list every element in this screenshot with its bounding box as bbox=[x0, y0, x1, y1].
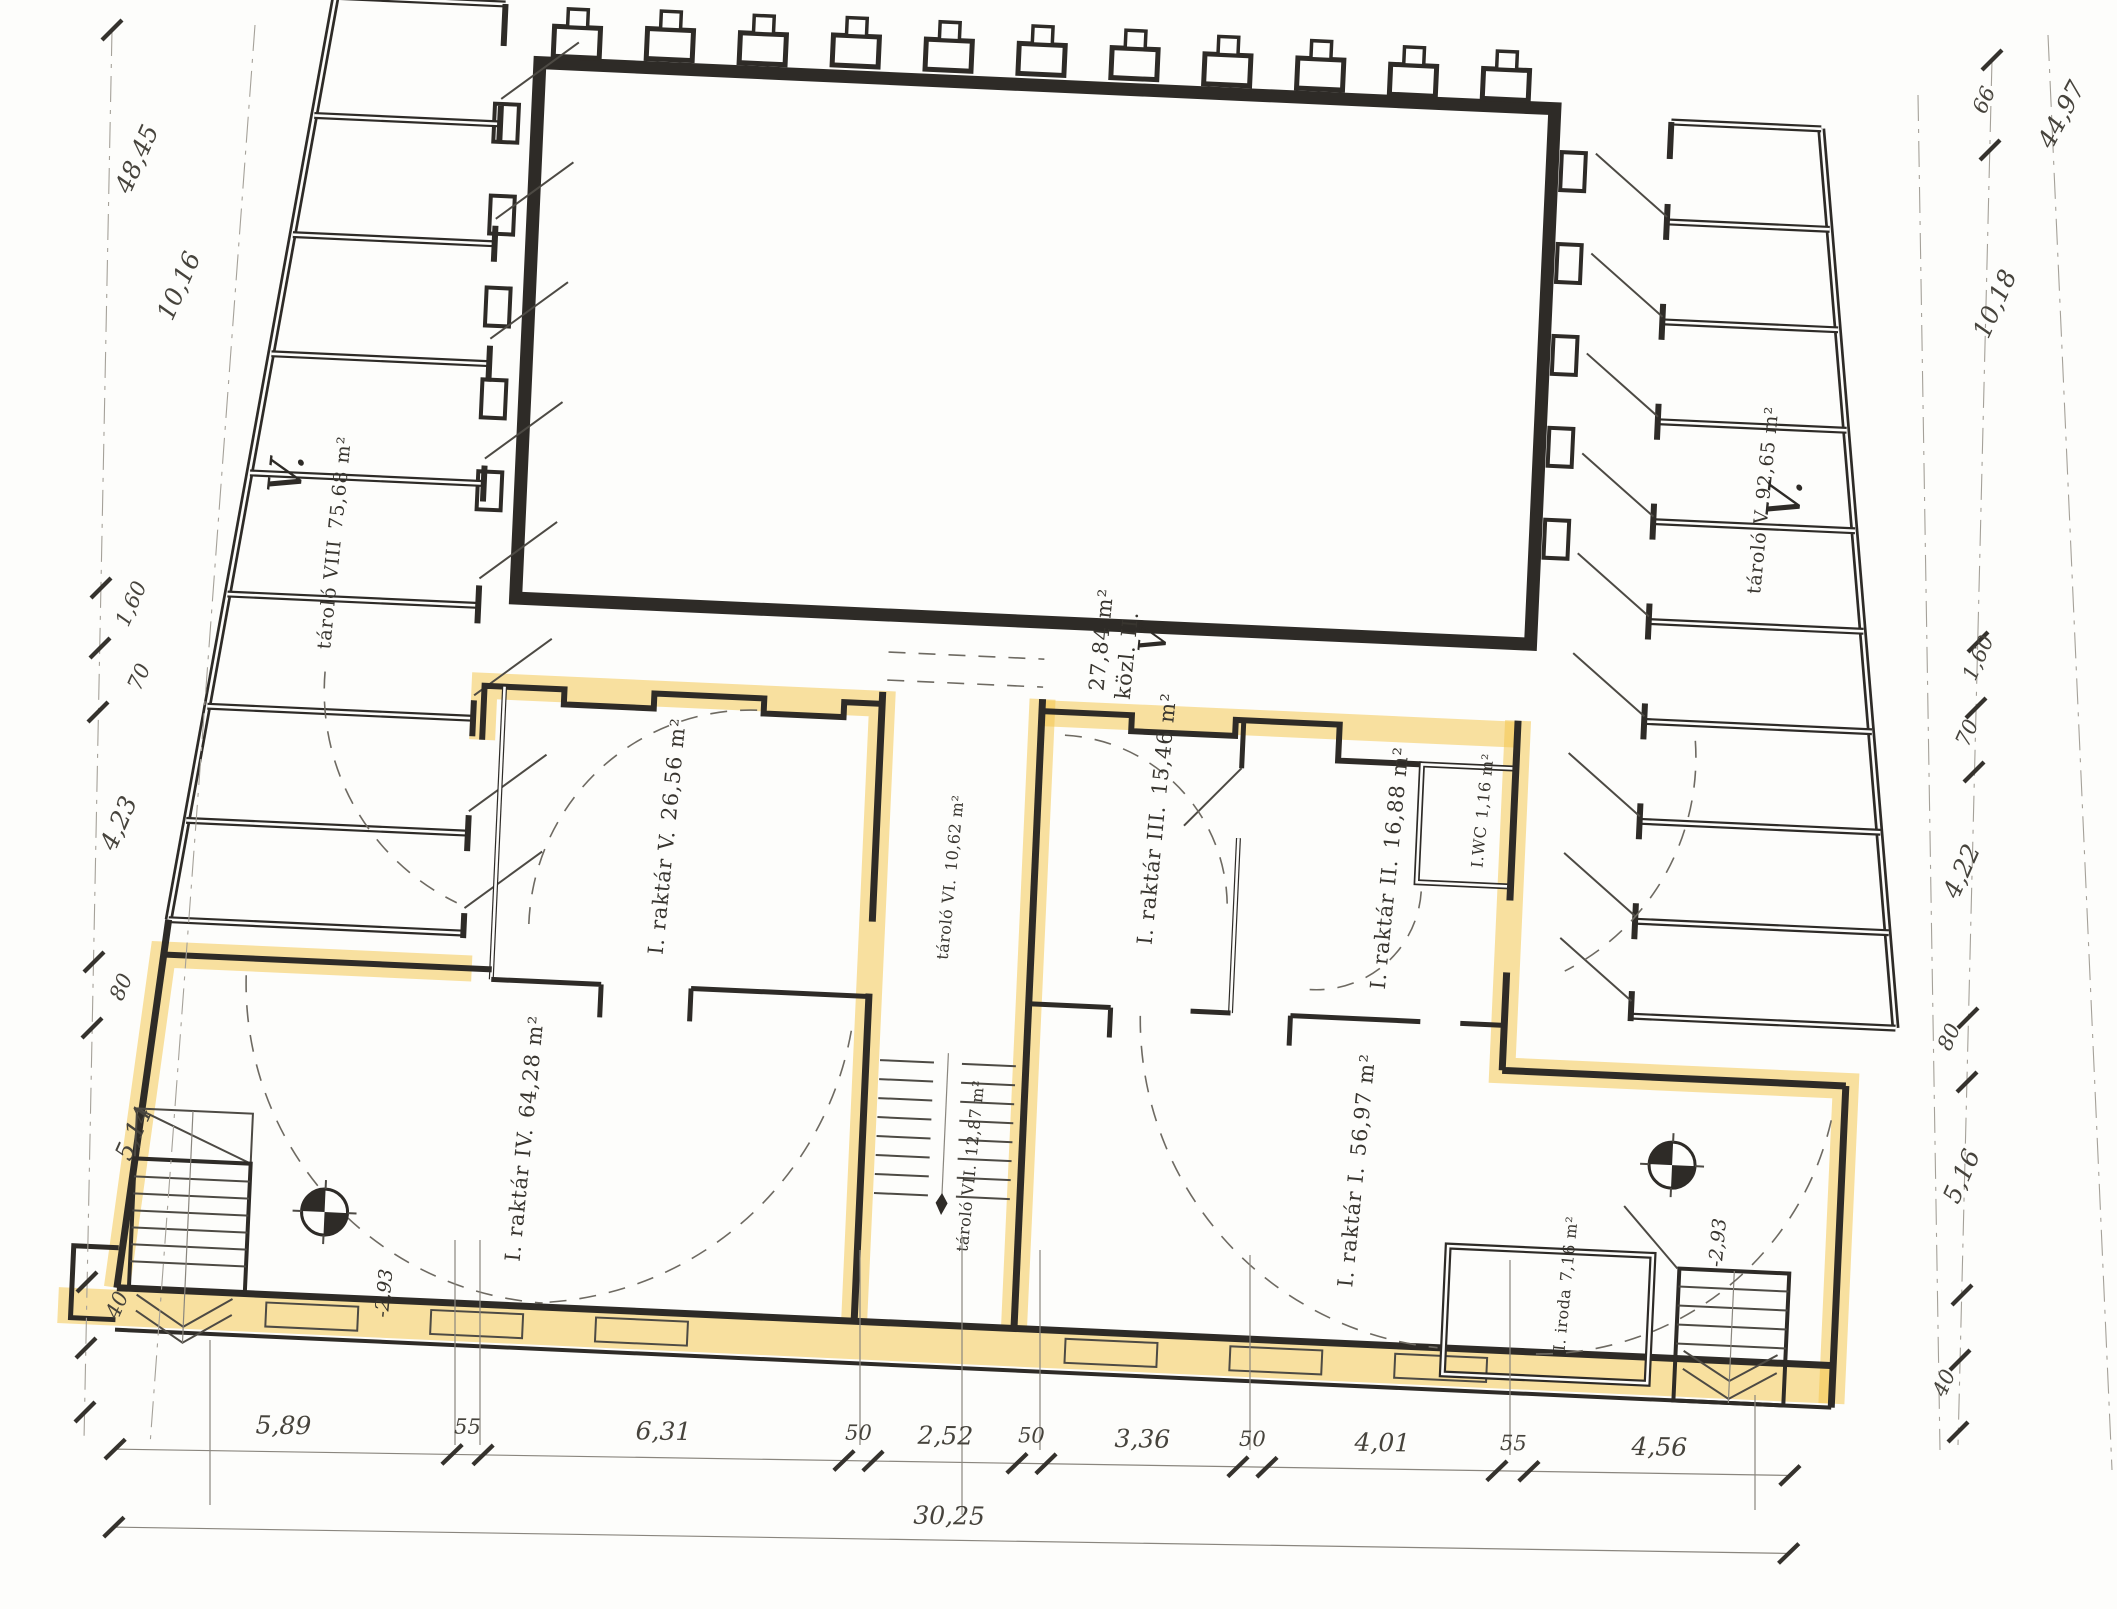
room-label-tarolo-viii: tároló VIII75,68 m² bbox=[313, 435, 356, 650]
room-area: 26,56 m² bbox=[657, 716, 691, 821]
room-name: tároló VII. bbox=[952, 1163, 979, 1252]
scanned-floor-plan-page: -2,93 -2,93 tároló VIII75,68 m² V. tárol… bbox=[0, 0, 2117, 1609]
dim-left-5: 80 bbox=[105, 970, 138, 1004]
dim-right-8: 40 bbox=[1927, 1366, 1960, 1401]
room-name: I. raktár II. bbox=[1366, 858, 1403, 991]
dim-bottom-9: 55 bbox=[1500, 1431, 1527, 1455]
dim-right-7: 5,16 bbox=[1937, 1145, 1986, 1208]
room-area: 56,97 m² bbox=[1346, 1052, 1380, 1157]
right-dimension-chain: 66 44,97 10,18 1,60 70 4,22 80 5,16 40 bbox=[1927, 50, 2091, 1442]
dim-right-2: 10,18 bbox=[1967, 265, 2023, 342]
dim-bottom-0: 5,89 bbox=[255, 1410, 311, 1440]
floor-plan-canvas: -2,93 -2,93 tároló VIII75,68 m² V. tárol… bbox=[0, 0, 2117, 1609]
dim-bottom-7: 50 bbox=[1239, 1427, 1266, 1451]
room-label-raktar-iv: I. raktár IV.64,28 m² bbox=[501, 1014, 549, 1262]
dim-right-3: 1,60 bbox=[1958, 632, 1999, 684]
dim-bottom-5: 50 bbox=[1018, 1423, 1045, 1447]
room-name: tároló VIII bbox=[313, 538, 346, 650]
dim-left-2: 1,60 bbox=[111, 578, 152, 630]
dim-bottom-2: 6,31 bbox=[635, 1416, 691, 1446]
floor-mark-corridor: V. bbox=[1130, 618, 1177, 655]
dim-left-1: 10,16 bbox=[151, 247, 207, 324]
highlight-layer bbox=[57, 656, 1861, 1404]
room-name: tároló V bbox=[1743, 509, 1773, 596]
dim-right-1: 44,97 bbox=[2031, 76, 2091, 154]
courtyard-side-pillars bbox=[477, 104, 1586, 559]
room-area: 1,16 m² bbox=[1472, 752, 1497, 819]
room-area: 7,16 m² bbox=[1556, 1215, 1581, 1282]
dim-left-0: 48,45 bbox=[109, 120, 165, 198]
level-marker-icon bbox=[1639, 1132, 1706, 1199]
room-label-raktar-v: I. raktár V.26,56 m² bbox=[644, 716, 691, 955]
floor-mark-left-wing: V. bbox=[257, 451, 315, 496]
room-label-iroda: I. iroda7,16 m² bbox=[1550, 1215, 1582, 1352]
room-label-raktar-ii: I. raktár II.16,88 m² bbox=[1366, 745, 1414, 990]
room-area: 75,68 m² bbox=[325, 435, 356, 531]
level-marker-icon bbox=[291, 1179, 358, 1246]
room-name: I. raktár V. bbox=[644, 829, 680, 956]
dim-bottom-8: 4,01 bbox=[1353, 1428, 1410, 1458]
floor-mark-right-wing: V. bbox=[1756, 476, 1814, 521]
room-label-raktar-i: I. raktár I.56,97 m² bbox=[1333, 1052, 1380, 1288]
dim-bottom-1: 55 bbox=[454, 1414, 481, 1438]
room-name: I. raktár IV. bbox=[501, 1127, 538, 1263]
dim-right-5: 4,22 bbox=[1937, 840, 1987, 904]
building-plan: -2,93 -2,93 tároló VIII75,68 m² V. tárol… bbox=[57, 0, 1940, 1420]
lower-block bbox=[70, 656, 1862, 1407]
room-name: I. iroda bbox=[1550, 1288, 1575, 1352]
dim-left-3: 70 bbox=[123, 660, 156, 694]
dim-bottom-10: 4,56 bbox=[1630, 1432, 1687, 1462]
dim-bottom-4: 2,52 bbox=[916, 1421, 973, 1451]
courtyard bbox=[473, 2, 1591, 646]
dim-right-4: 70 bbox=[1951, 716, 1984, 750]
dim-bottom-3: 50 bbox=[845, 1421, 872, 1445]
dim-bottom-total: 30,25 bbox=[913, 1501, 985, 1531]
room-area: 12,87 m² bbox=[962, 1079, 988, 1157]
dim-right-0: 66 bbox=[1968, 83, 2001, 117]
room-area: 64,28 m² bbox=[515, 1014, 549, 1119]
room-name: I.WC bbox=[1467, 825, 1490, 869]
room-label-tarolo-vii: tároló VII.12,87 m² bbox=[952, 1079, 988, 1252]
room-label-tarolo-vi: tároló VI.10,62 m² bbox=[933, 794, 968, 961]
room-area: 10,62 m² bbox=[941, 794, 967, 872]
room-name: I. raktár III. bbox=[1133, 804, 1171, 946]
room-name: I. raktár I. bbox=[1333, 1165, 1369, 1288]
room-label-wc: I.WC1,16 m² bbox=[1467, 752, 1497, 868]
dim-left-4: 4,23 bbox=[94, 792, 144, 856]
right-wing-door-leaves bbox=[1558, 154, 1670, 1001]
bottom-dimension-chain: 5,89 55 6,31 50 2,52 50 3,36 50 4,01 55 … bbox=[104, 1408, 1801, 1564]
level-value-right: -2,93 bbox=[1705, 1217, 1732, 1268]
room-name: tároló VI. bbox=[933, 878, 960, 961]
dim-bottom-6: 3,36 bbox=[1114, 1424, 1170, 1454]
highlight-left-wall bbox=[117, 953, 472, 1303]
